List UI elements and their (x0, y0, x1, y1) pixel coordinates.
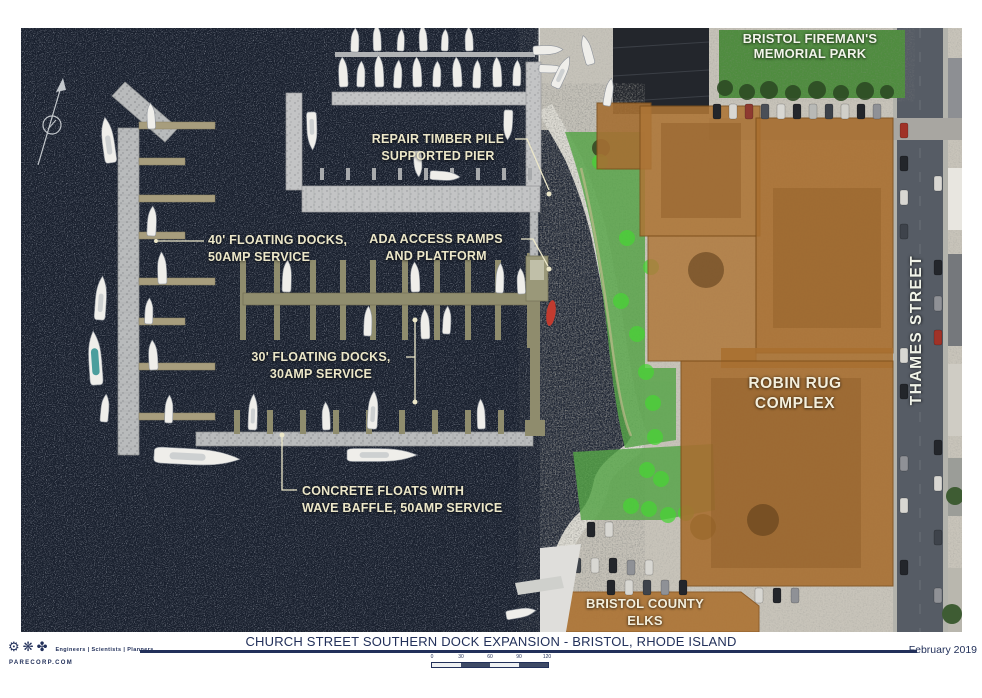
label-line: MEMORIAL PARK (743, 46, 878, 61)
label-robin-rug: ROBIN RUG COMPLEX (748, 374, 841, 414)
scale-tick: 120 (543, 654, 551, 660)
label-line: SUPPORTED PIER (359, 148, 517, 165)
scale-segment (432, 663, 461, 667)
scale-tick: 0 (431, 654, 434, 660)
label-ada-ramps: ADA ACCESS RAMPS AND PLATFORM (351, 231, 521, 265)
snowflake-icon: ❋ (23, 640, 34, 654)
sheet-date: February 2019 (909, 644, 977, 656)
logo-website: PARECORP.COM (9, 660, 73, 666)
site-plan-map: BRISTOL FIREMAN'S MEMORIAL PARK REPAIR T… (21, 28, 962, 632)
gear-icon: ⚙ (8, 640, 20, 654)
scale-tick: 90 (516, 654, 522, 660)
scale-tick: 30 (458, 654, 464, 660)
label-concrete-floats: CONCRETE FLOATS WITH WAVE BAFFLE, 50AMP … (302, 483, 502, 517)
scale-tick: 60 (487, 654, 493, 660)
label-line: 50AMP SERVICE (208, 249, 347, 266)
label-thames-street: THAMES STREET (907, 255, 927, 405)
label-30ft-docks: 30' FLOATING DOCKS, 30AMP SERVICE (237, 349, 405, 383)
label-repair-pier: REPAIR TIMBER PILE SUPPORTED PIER (359, 131, 517, 165)
label-line: COMPLEX (748, 394, 841, 414)
label-line: CONCRETE FLOATS WITH (302, 483, 502, 500)
plan-sheet: BRISTOL FIREMAN'S MEMORIAL PARK REPAIR T… (0, 0, 982, 698)
pare-logo: ⚙ ❋ ✤ Engineers | Scientists | Planners (8, 640, 154, 654)
label-memorial-park: BRISTOL FIREMAN'S MEMORIAL PARK (743, 31, 878, 61)
title-rule (140, 650, 917, 653)
label-line: 30AMP SERVICE (237, 366, 405, 383)
scale-bar: 0 30 60 90 120 (431, 654, 549, 669)
scale-segment (461, 663, 490, 667)
label-line: 30' FLOATING DOCKS, (237, 349, 405, 366)
label-line: WAVE BAFFLE, 50AMP SERVICE (302, 500, 502, 517)
label-line: 40' FLOATING DOCKS, (208, 232, 347, 249)
clover-icon: ✤ (37, 640, 48, 654)
label-line: ELKS (586, 612, 704, 629)
dark-roof-building (613, 28, 709, 114)
label-elks: BRISTOL COUNTY ELKS (586, 595, 704, 629)
label-line: ROBIN RUG (748, 374, 841, 394)
label-40ft-docks: 40' FLOATING DOCKS, 50AMP SERVICE (208, 232, 347, 266)
scale-segment (519, 663, 548, 667)
scale-segment (490, 663, 519, 667)
label-line: BRISTOL FIREMAN'S (743, 31, 878, 46)
label-line: BRISTOL COUNTY (586, 595, 704, 612)
label-line: AND PLATFORM (351, 248, 521, 265)
label-line: REPAIR TIMBER PILE (359, 131, 517, 148)
aerial-scene (21, 28, 962, 632)
logo-tagline: Engineers | Scientists | Planners (55, 647, 153, 653)
scale-bar-segments (431, 662, 549, 668)
label-line: ADA ACCESS RAMPS (351, 231, 521, 248)
